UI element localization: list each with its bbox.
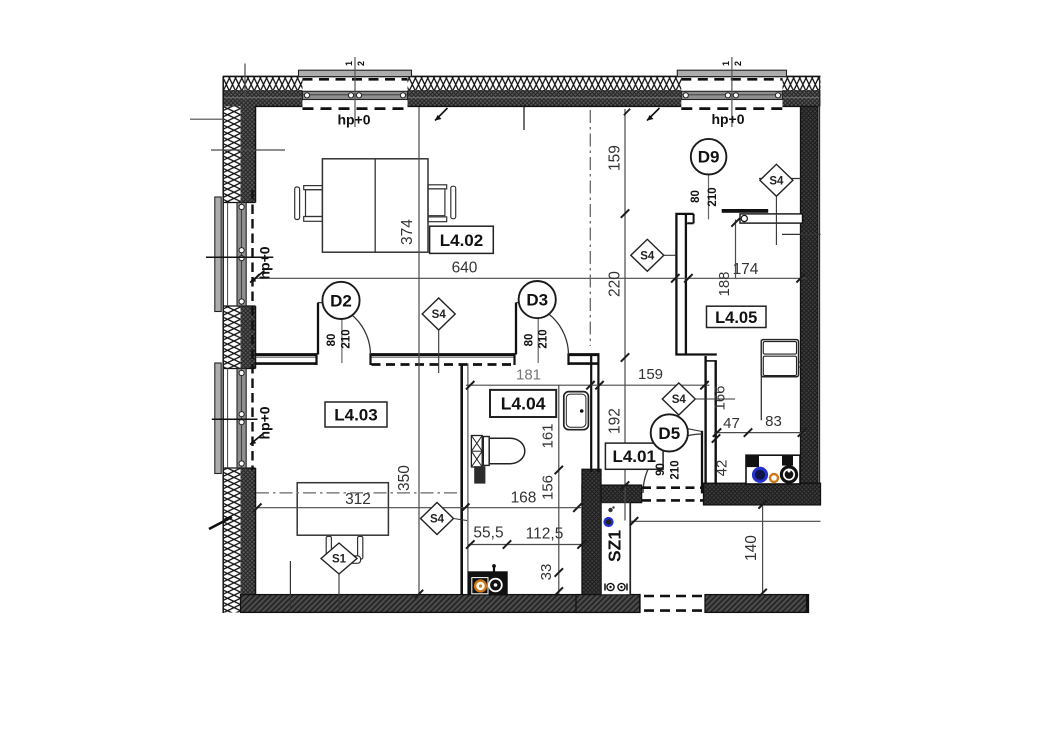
svg-text:2: 2 bbox=[733, 61, 743, 66]
svg-text:S4: S4 bbox=[432, 309, 447, 321]
svg-text:90: 90 bbox=[655, 463, 667, 476]
svg-text:S4: S4 bbox=[640, 250, 655, 262]
svg-text:156: 156 bbox=[540, 475, 557, 500]
svg-text:1: 1 bbox=[721, 61, 731, 66]
svg-text:168: 168 bbox=[511, 490, 537, 507]
svg-text:S4: S4 bbox=[769, 175, 784, 187]
svg-text:83: 83 bbox=[765, 413, 782, 430]
svg-text:112,5: 112,5 bbox=[526, 526, 564, 543]
svg-text:166: 166 bbox=[712, 385, 729, 410]
svg-text:2: 2 bbox=[356, 61, 366, 66]
svg-text:80: 80 bbox=[326, 334, 338, 347]
svg-text:D3: D3 bbox=[526, 291, 548, 310]
svg-text:188: 188 bbox=[716, 271, 733, 296]
svg-text:210: 210 bbox=[707, 187, 719, 206]
svg-text:L4.03: L4.03 bbox=[334, 406, 377, 425]
svg-text:L4.04: L4.04 bbox=[501, 393, 546, 413]
svg-text:L4.01: L4.01 bbox=[612, 447, 655, 466]
svg-text:161: 161 bbox=[540, 423, 557, 448]
svg-text:hp+0: hp+0 bbox=[711, 111, 744, 127]
svg-text:159: 159 bbox=[607, 145, 624, 171]
svg-text:174: 174 bbox=[733, 261, 759, 278]
svg-text:312: 312 bbox=[345, 491, 371, 508]
svg-text:S1: S1 bbox=[332, 554, 347, 566]
svg-text:S4: S4 bbox=[672, 394, 687, 406]
svg-text:220: 220 bbox=[607, 271, 624, 297]
svg-text:D9: D9 bbox=[698, 148, 720, 167]
svg-text:80: 80 bbox=[524, 334, 536, 347]
svg-text:hp+0: hp+0 bbox=[337, 112, 370, 128]
svg-text:1: 1 bbox=[344, 61, 354, 66]
svg-text:192: 192 bbox=[607, 408, 624, 434]
svg-text:D2: D2 bbox=[330, 291, 352, 310]
svg-text:47: 47 bbox=[723, 415, 740, 432]
svg-text:hp+0: hp+0 bbox=[257, 406, 273, 439]
svg-text:374: 374 bbox=[399, 219, 416, 245]
svg-text:140: 140 bbox=[743, 535, 760, 561]
svg-text:210: 210 bbox=[341, 329, 353, 348]
svg-text:80: 80 bbox=[690, 190, 702, 203]
svg-text:640: 640 bbox=[452, 260, 478, 277]
svg-text:L4.05: L4.05 bbox=[715, 309, 757, 327]
svg-text:210: 210 bbox=[670, 460, 682, 479]
svg-text:55,5: 55,5 bbox=[473, 525, 503, 542]
svg-text:181: 181 bbox=[516, 367, 541, 384]
svg-text:350: 350 bbox=[396, 465, 413, 491]
svg-text:42: 42 bbox=[714, 460, 731, 477]
svg-text:210: 210 bbox=[538, 329, 550, 348]
svg-text:D5: D5 bbox=[658, 424, 680, 443]
svg-text:SZ1: SZ1 bbox=[605, 530, 625, 562]
svg-text:159: 159 bbox=[638, 366, 663, 383]
svg-text:L4.02: L4.02 bbox=[440, 231, 483, 250]
svg-text:33: 33 bbox=[538, 564, 555, 581]
svg-text:S4: S4 bbox=[430, 514, 445, 526]
